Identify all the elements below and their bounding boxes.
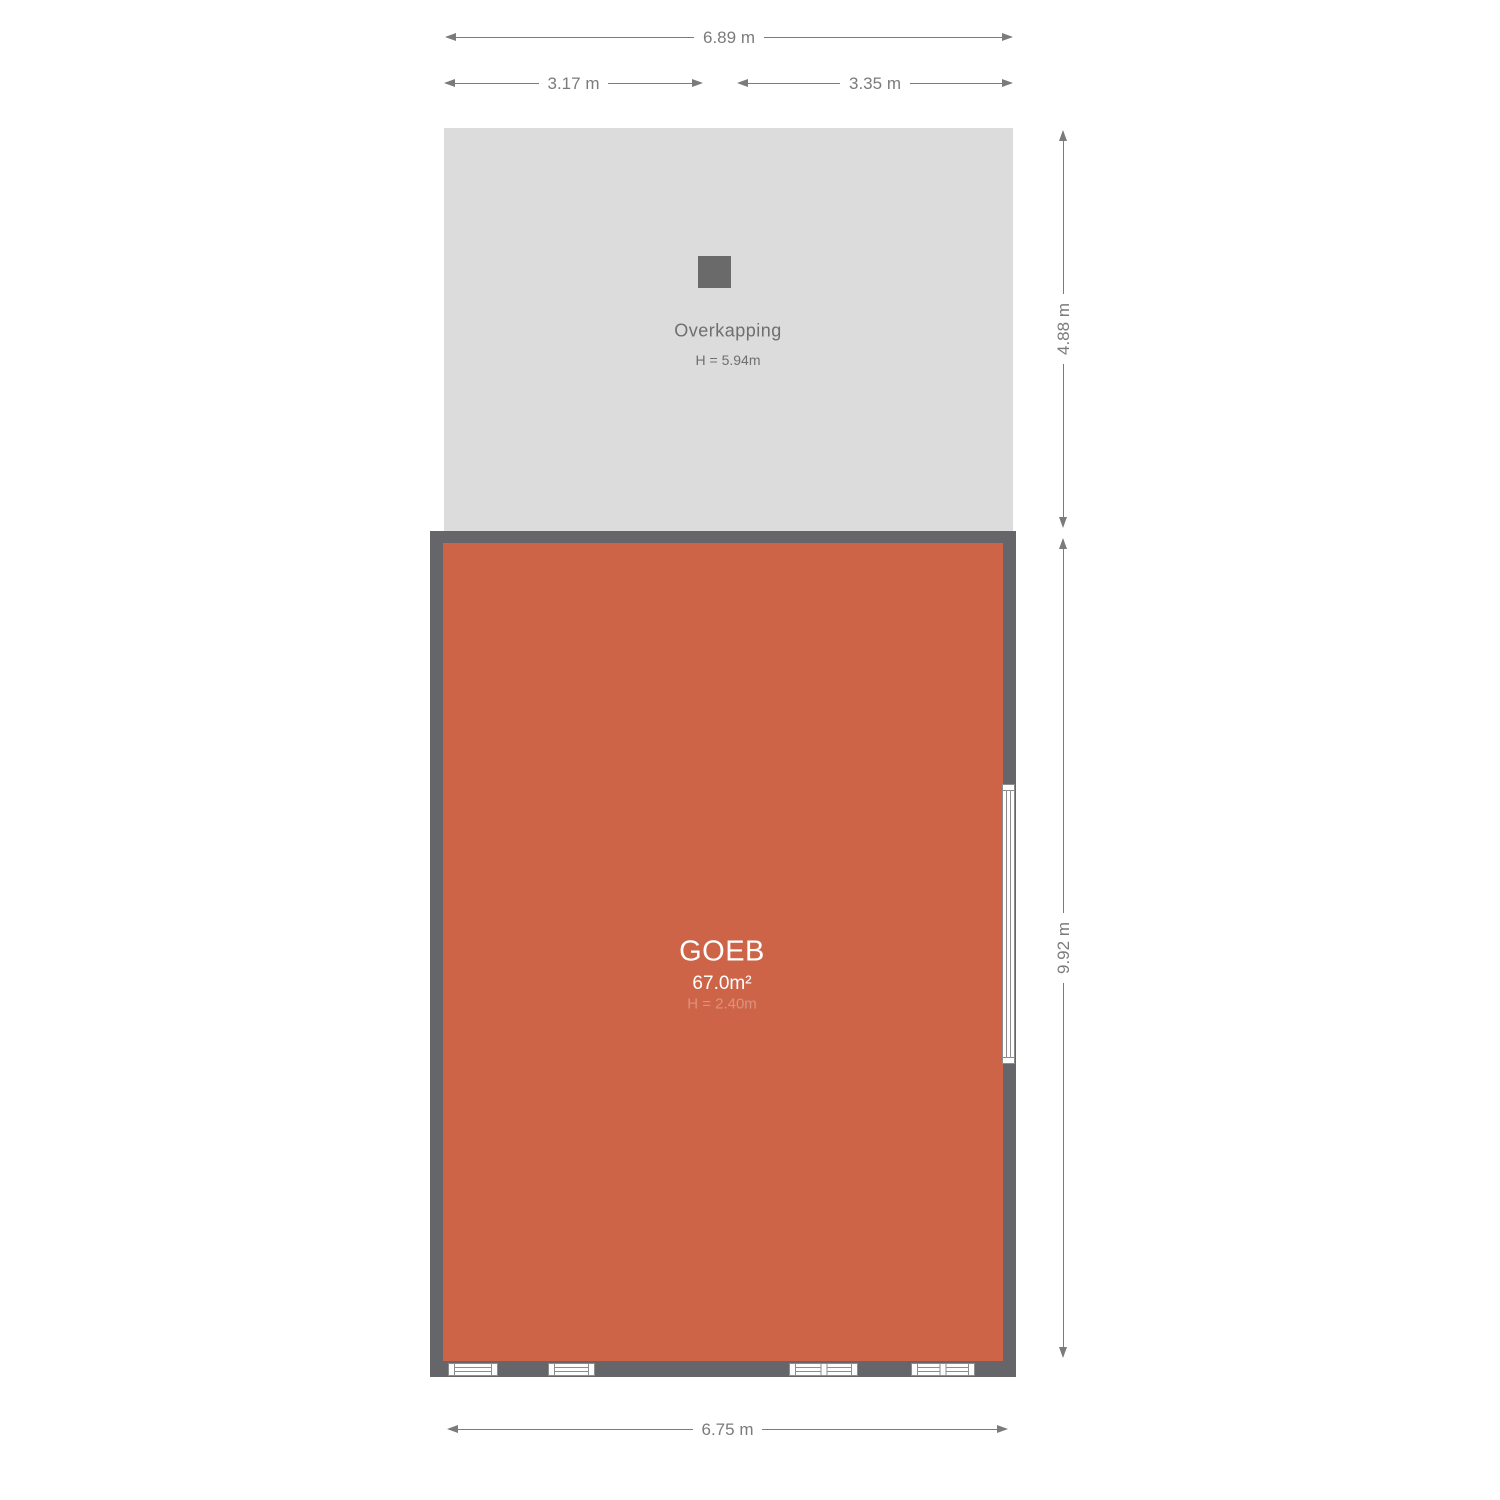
dimension-label: 3.17 m [539, 74, 609, 94]
arrowhead-right-icon [997, 1425, 1008, 1433]
arrowhead-left-icon [445, 33, 456, 41]
window-mullion [940, 1363, 947, 1376]
window-bottom-4 [911, 1363, 975, 1376]
arrowhead-right-icon [1002, 79, 1013, 87]
dimension-label: 6.75 m [693, 1420, 763, 1440]
window-pane-line [1006, 785, 1007, 1063]
arrowhead-left-icon [737, 79, 748, 87]
window-pane-line [449, 1371, 497, 1372]
dimension-label: 3.35 m [840, 74, 910, 94]
window-mullion [820, 1363, 827, 1376]
window-end-cap [491, 1363, 498, 1376]
arrowhead-left-icon [444, 79, 455, 87]
window-end-cap [448, 1363, 455, 1376]
window-bottom-1 [448, 1363, 498, 1376]
overkapping-name-label: Overkapping [674, 321, 782, 342]
arrowhead-left-icon [447, 1425, 458, 1433]
window-end-cap [1002, 784, 1015, 791]
window-pane-line [449, 1367, 497, 1368]
window-bottom-2 [548, 1363, 595, 1376]
room-name-label: GOEB [679, 935, 765, 968]
pillar [698, 256, 731, 288]
window-right [1002, 784, 1015, 1064]
window-end-cap [588, 1363, 595, 1376]
arrowhead-down-icon [1059, 517, 1067, 528]
window-pane-line [1010, 785, 1011, 1063]
room-height-label: H = 2.40m [687, 995, 757, 1012]
window-end-cap [789, 1363, 796, 1376]
window-end-cap [851, 1363, 858, 1376]
arrowhead-right-icon [692, 79, 703, 87]
overkapping-height-label: H = 5.94m [696, 352, 761, 368]
window-end-cap [911, 1363, 918, 1376]
floor-plan-canvas: 6.89 m 3.17 m 3.35 m Overkapping H = 5.9… [0, 0, 1500, 1500]
window-end-cap [1002, 1057, 1015, 1064]
window-end-cap [548, 1363, 555, 1376]
window-bottom-3 [789, 1363, 858, 1376]
arrowhead-down-icon [1059, 1347, 1067, 1358]
arrowhead-up-icon [1059, 538, 1067, 549]
window-end-cap [968, 1363, 975, 1376]
arrowhead-right-icon [1002, 33, 1013, 41]
dimension-label: 4.88 m [1054, 294, 1074, 364]
dimension-label: 6.89 m [694, 28, 764, 48]
dimension-label: 9.92 m [1054, 913, 1074, 983]
room-area-label: 67.0m² [692, 973, 751, 995]
arrowhead-up-icon [1059, 130, 1067, 141]
